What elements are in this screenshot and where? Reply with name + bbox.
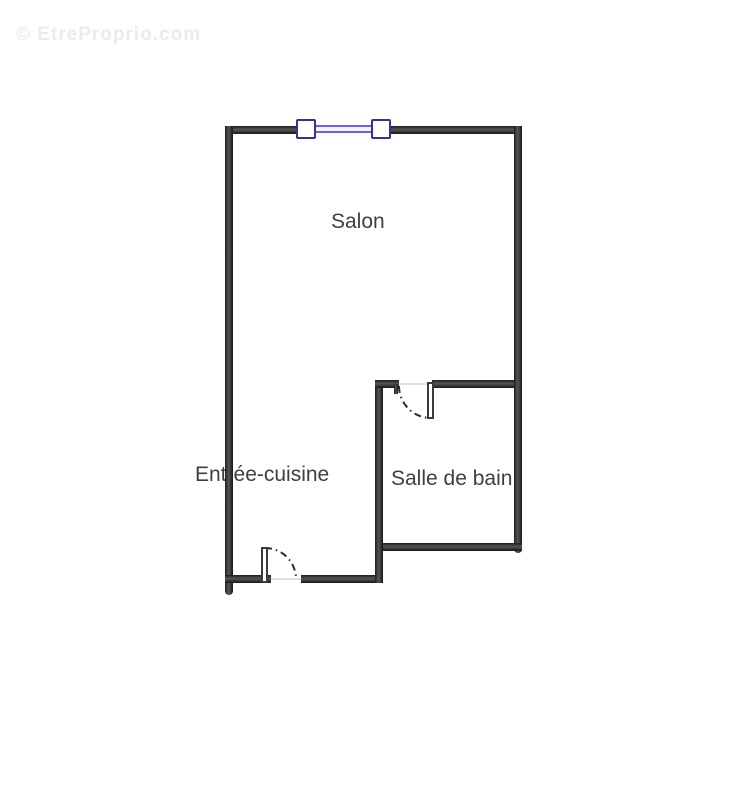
bathroom-door-leaf: [427, 382, 434, 419]
door-swing-arcs: [0, 0, 729, 800]
entrance-door-threshold: [271, 578, 301, 580]
wall-bathroom-bottom: [377, 543, 522, 551]
window-frame-right-icon: [371, 119, 391, 139]
wall-bottom-right-segment: [301, 575, 383, 583]
wall-left-exterior: [225, 126, 233, 595]
floor-plan-page: © EtreProprio.com Salon Entrée-cuisine S…: [0, 0, 729, 800]
wall-interior-vertical: [375, 380, 383, 583]
wall-top-right-segment: [391, 126, 522, 134]
window-frame-left-icon: [296, 119, 316, 139]
wall-interior-horizontal-right: [432, 380, 514, 388]
wall-top-left-segment: [225, 126, 297, 134]
wall-right-exterior: [514, 126, 522, 553]
wall-bathroom-door-jamb: [394, 384, 398, 394]
bathroom-door-threshold: [399, 383, 427, 385]
entrance-door-leaf: [261, 547, 268, 583]
window-glass-icon: [316, 125, 371, 133]
